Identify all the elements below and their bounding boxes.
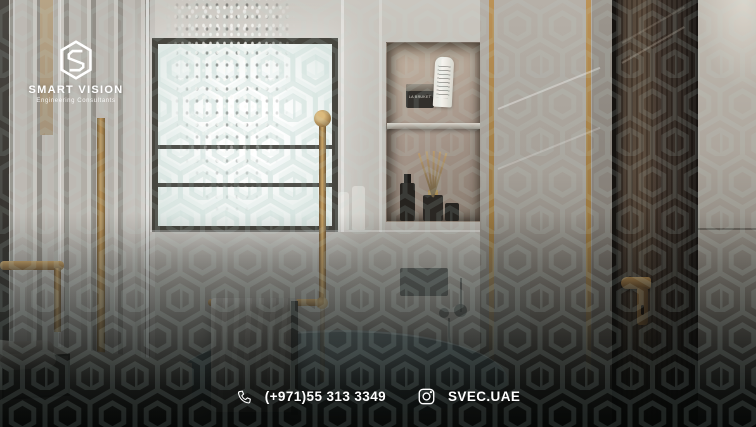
contact-bar: (+971)55 313 3349 SVEC.UAE xyxy=(0,388,756,405)
phone-number: (+971)55 313 3349 xyxy=(265,389,386,404)
brand-logo: SMART VISION Engineering Consultants xyxy=(16,40,136,104)
phone-icon xyxy=(236,389,252,405)
instagram-handle: SVEC.UAE xyxy=(448,389,520,404)
brand-name: SMART VISION xyxy=(16,84,136,96)
hexagon-s-logo-icon xyxy=(59,40,93,80)
brand-tagline: Engineering Consultants xyxy=(16,98,136,104)
bathroom-render-poster: LA BRUKET xyxy=(0,0,756,427)
instagram-icon xyxy=(418,388,435,405)
